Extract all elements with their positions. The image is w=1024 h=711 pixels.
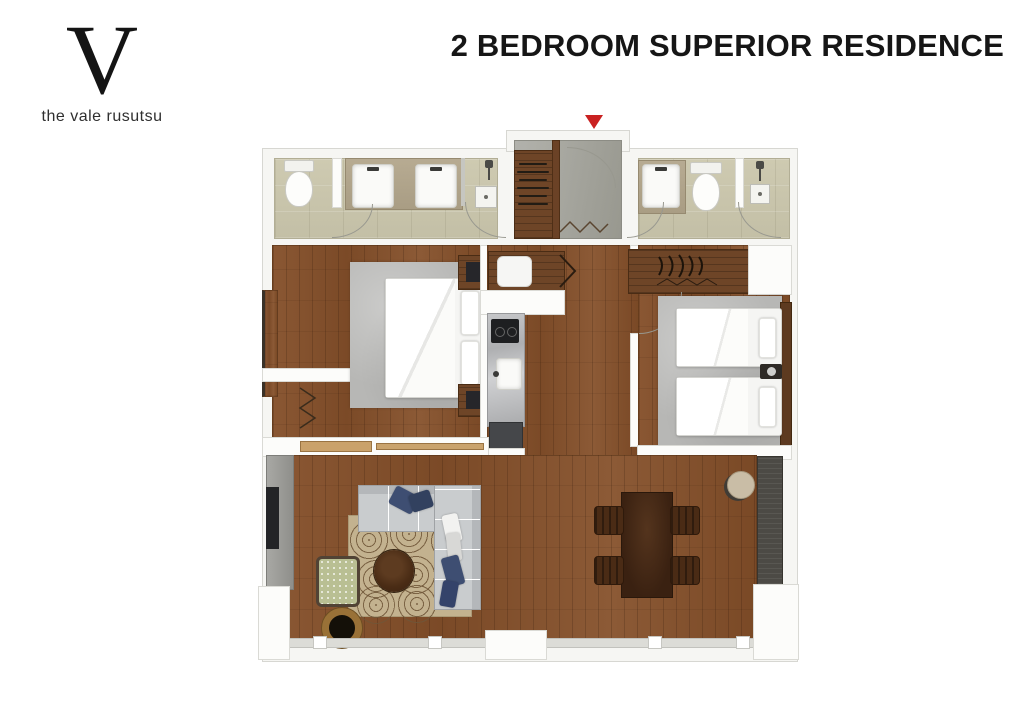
vanity-sink-2 xyxy=(415,164,457,208)
window-counter-desk xyxy=(757,456,783,590)
shower-arm xyxy=(759,169,761,181)
shower-drain-2 xyxy=(750,184,770,204)
shower-partition-wall-2 xyxy=(735,158,744,208)
lamp-icon xyxy=(767,367,776,376)
dining-chair xyxy=(670,506,700,535)
dining-chair xyxy=(594,506,624,535)
coat-area-zigzag xyxy=(558,216,610,236)
burner xyxy=(507,327,517,337)
duvet xyxy=(677,309,748,366)
floor-plan xyxy=(258,128,798,660)
kitchen-sink xyxy=(496,358,522,390)
shower-arm xyxy=(488,168,490,180)
bedroom-2-wardrobe xyxy=(628,249,750,294)
faucet-icon xyxy=(367,167,379,171)
pillow xyxy=(461,291,479,335)
tv-screen xyxy=(266,487,279,549)
armchair xyxy=(316,556,360,607)
desk-chair xyxy=(727,471,755,499)
vanity-sink-1 xyxy=(352,164,394,208)
nightstand-lamp xyxy=(466,391,480,409)
pillow xyxy=(461,341,479,385)
center-pillar xyxy=(485,630,547,660)
page-title: 2 BEDROOM SUPERIOR RESIDENCE xyxy=(451,28,1004,64)
logo-v-monogram: V xyxy=(36,14,168,106)
corner-wall-right xyxy=(753,584,799,660)
countertop-appliance xyxy=(497,256,532,287)
nightstand-lamp xyxy=(466,262,480,282)
closet-shelf-lines xyxy=(516,160,550,210)
twin-bed-2 xyxy=(676,377,782,436)
kitchen-counter-return xyxy=(480,290,565,315)
toilet-1 xyxy=(285,171,313,207)
folding-door-symbol xyxy=(558,253,578,289)
dishwasher xyxy=(489,422,523,450)
pillow xyxy=(759,387,776,427)
window-mullion xyxy=(648,636,662,649)
wardrobe-zigzag xyxy=(298,386,318,430)
rug-pattern xyxy=(357,586,395,624)
duvet xyxy=(386,279,455,397)
wall-bench xyxy=(300,441,372,452)
window-mullion xyxy=(313,636,327,649)
entrance-marker-icon xyxy=(585,115,603,129)
master-bed xyxy=(385,278,486,398)
dining-chair xyxy=(594,556,624,585)
dining-chair xyxy=(670,556,700,585)
page: V the vale rusutsu 2 BEDROOM SUPERIOR RE… xyxy=(0,0,1024,711)
window-mullion xyxy=(736,636,750,649)
wardrobe-side-wall xyxy=(748,245,792,295)
window-mullion xyxy=(428,636,442,649)
toilet-partition-wall xyxy=(332,158,342,208)
shower-head-icon xyxy=(756,161,764,169)
shower-head-icon xyxy=(485,160,493,168)
niche-shelf-wall xyxy=(262,368,352,382)
cooktop xyxy=(491,319,519,343)
faucet-icon xyxy=(430,167,442,171)
corner-wall-left xyxy=(258,586,290,660)
duvet xyxy=(677,378,748,435)
coffee-table xyxy=(374,550,414,592)
logo-wordmark: the vale rusutsu xyxy=(36,108,168,126)
toilet-2 xyxy=(692,173,720,211)
pillow xyxy=(759,318,776,358)
dining-table xyxy=(621,492,673,598)
twin-nightstand xyxy=(760,364,782,379)
faucet-icon xyxy=(655,167,667,171)
hanging-rod-symbol xyxy=(655,253,725,291)
wall-ledge xyxy=(376,443,484,450)
rug-pattern xyxy=(397,584,437,624)
brand-logo: V the vale rusutsu xyxy=(36,14,168,126)
kitchen-faucet-icon xyxy=(493,371,499,377)
burner xyxy=(495,327,505,337)
shower-glass-partition xyxy=(461,158,465,206)
twin-bed-1 xyxy=(676,308,782,367)
